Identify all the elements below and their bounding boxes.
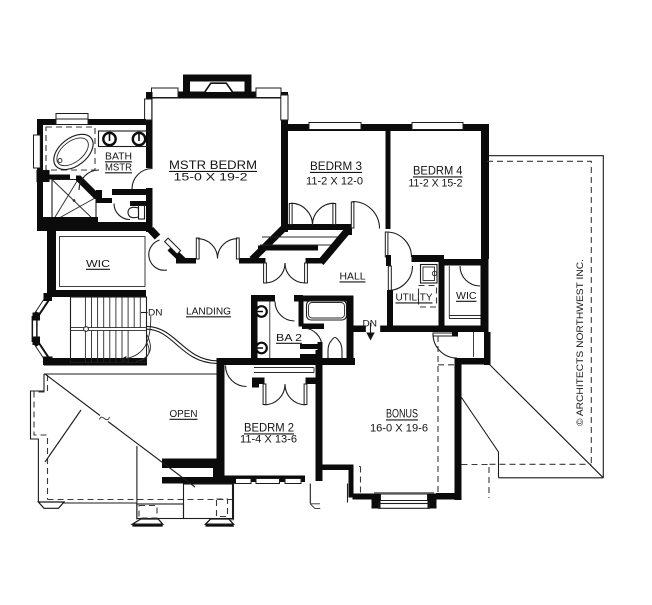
- svg-text:BA 2: BA 2: [276, 333, 303, 344]
- svg-text:LANDING: LANDING: [186, 307, 231, 318]
- svg-text:UTILITY: UTILITY: [396, 293, 433, 304]
- svg-text:15-0 X 19-2: 15-0 X 19-2: [174, 172, 248, 184]
- svg-text:DN: DN: [148, 308, 163, 319]
- svg-text:16-0 X 19-6: 16-0 X 19-6: [370, 423, 428, 435]
- svg-text:BATH: BATH: [105, 152, 132, 163]
- svg-text:MSTR BEDRM: MSTR BEDRM: [169, 158, 257, 172]
- svg-text:11-4 X 13-6: 11-4 X 13-6: [240, 434, 297, 446]
- svg-text:© ARCHITECTS NORTHWEST INC.: © ARCHITECTS NORTHWEST INC.: [575, 259, 586, 426]
- svg-text:WIC: WIC: [86, 259, 110, 270]
- svg-text:BEDRM 2: BEDRM 2: [244, 421, 294, 435]
- svg-text:OPEN: OPEN: [170, 409, 198, 420]
- svg-text:BEDRM 3: BEDRM 3: [310, 159, 362, 173]
- svg-text:DN: DN: [363, 319, 378, 330]
- svg-text:BONUS: BONUS: [386, 407, 418, 421]
- svg-text:BEDRM 4: BEDRM 4: [413, 164, 463, 178]
- svg-text:11-2 X 12-0: 11-2 X 12-0: [306, 176, 363, 188]
- svg-text:MSTR: MSTR: [105, 163, 132, 174]
- svg-text:WIC: WIC: [456, 291, 477, 302]
- svg-text:HALL: HALL: [340, 272, 366, 283]
- svg-text:11-2 X 15-2: 11-2 X 15-2: [409, 178, 463, 190]
